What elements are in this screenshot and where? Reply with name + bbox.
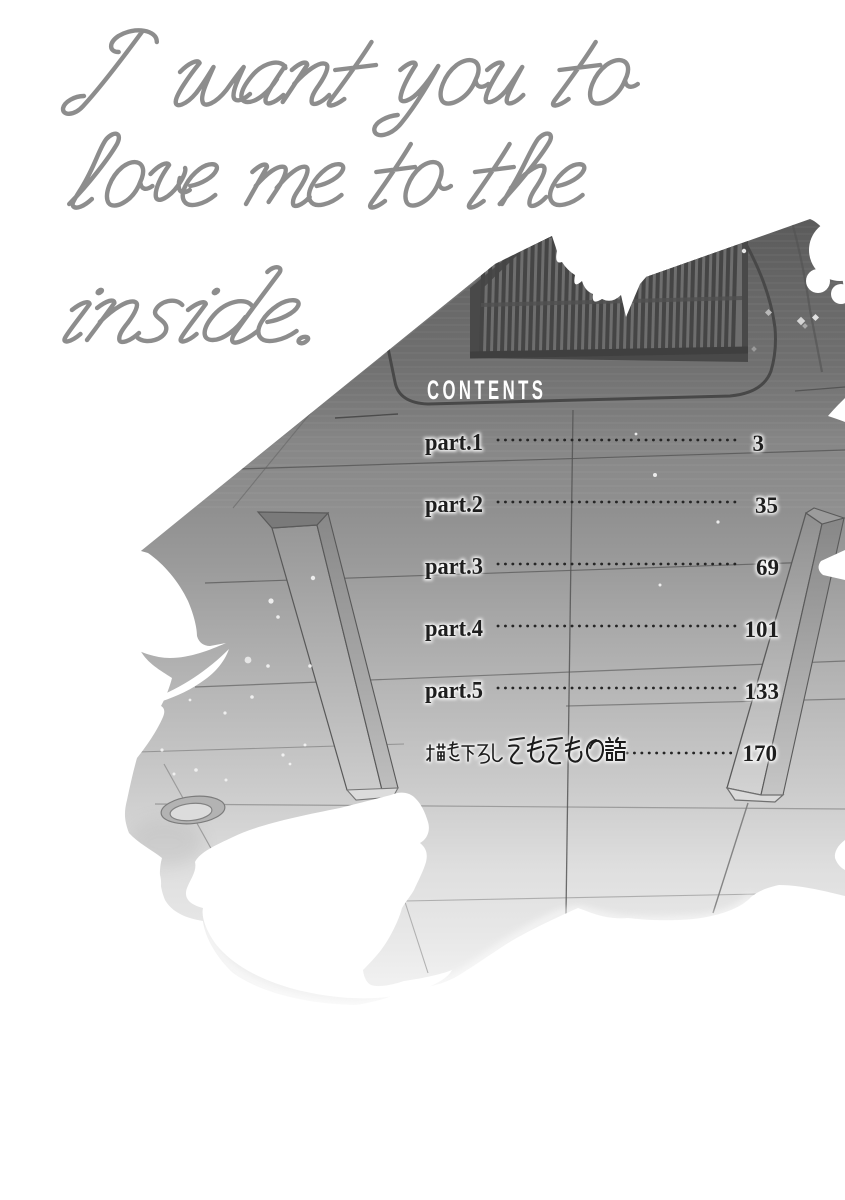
svg-text:69: 69 bbox=[756, 555, 779, 580]
svg-text:part.5: part.5 bbox=[425, 677, 483, 704]
svg-text:part.2: part.2 bbox=[425, 491, 483, 518]
svg-text:part.3: part.3 bbox=[425, 553, 483, 580]
svg-text:CONTENTS: CONTENTS bbox=[427, 375, 546, 405]
svg-text:133: 133 bbox=[745, 679, 780, 704]
svg-text:101: 101 bbox=[745, 617, 780, 642]
svg-text:part.4: part.4 bbox=[425, 615, 483, 642]
svg-text:35: 35 bbox=[755, 493, 778, 518]
svg-text:part.1: part.1 bbox=[425, 429, 483, 456]
svg-text:3: 3 bbox=[753, 431, 765, 456]
svg-text:170: 170 bbox=[743, 741, 778, 766]
